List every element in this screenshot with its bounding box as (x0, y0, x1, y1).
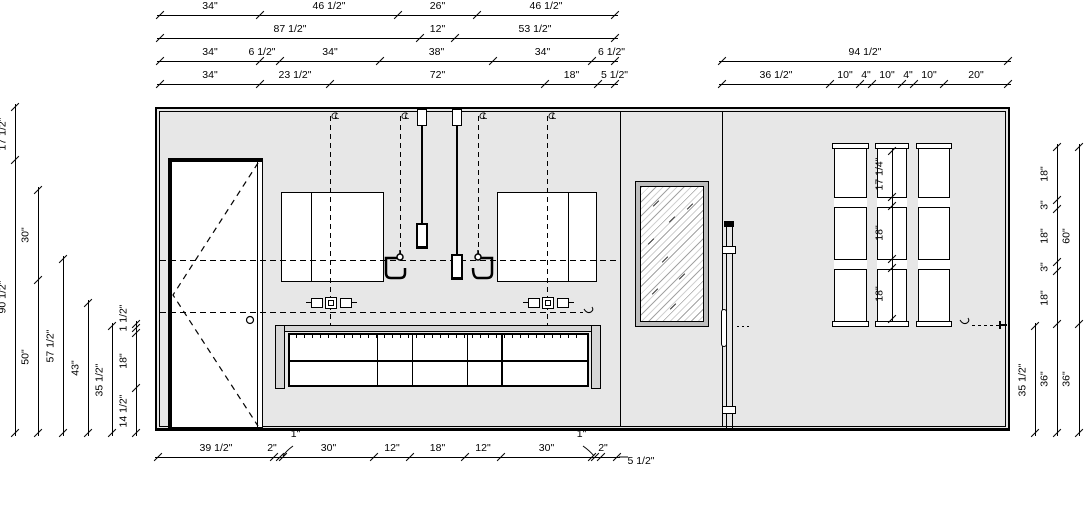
dim-label: 46 1/2" (313, 1, 346, 12)
dim-label: 30" (539, 443, 554, 454)
dim-label: 5 1/2" (601, 70, 628, 81)
dim-label: 10" (921, 70, 936, 81)
dim-label: 12" (430, 24, 445, 35)
dim-label: 60" (1062, 228, 1073, 243)
dim-label: 18" (119, 353, 130, 368)
dim-label: 39 1/2" (200, 443, 233, 454)
dim-label: 3" (1040, 200, 1051, 210)
dim-label: 34" (535, 47, 550, 58)
dim-label: 1" (291, 429, 301, 440)
dim-label: 2" (598, 443, 608, 454)
dim-label: 18" (430, 443, 445, 454)
dim-label: 38" (429, 47, 444, 58)
dimension-layer: 34"46 1/2"26"46 1/2"87 1/2"12"53 1/2"34"… (0, 0, 1087, 507)
dimension-line (155, 457, 620, 458)
dim-label: 36" (1040, 371, 1051, 386)
dim-label: 5 1/2" (627, 456, 654, 467)
dimension-line (719, 61, 1011, 62)
dim-label: 10" (879, 70, 894, 81)
dim-label: 14 1/2" (119, 394, 130, 427)
dim-label: 20" (968, 70, 983, 81)
dim-label: 1 1/2" (119, 304, 130, 331)
dimension-line (88, 300, 89, 436)
dimension-line (63, 256, 64, 436)
dim-label: 18" (1040, 290, 1051, 305)
dim-label: 36 1/2" (760, 70, 793, 81)
dim-label: 94 1/2" (849, 47, 882, 58)
dim-label: 18" (875, 286, 886, 301)
dim-label: 6 1/2" (248, 47, 275, 58)
dim-label: 23 1/2" (279, 70, 312, 81)
dimension-line (15, 104, 16, 436)
dimension-line (892, 148, 893, 322)
dimension-line (719, 84, 1011, 85)
dim-label: 34" (322, 47, 337, 58)
dim-label: 2" (267, 443, 277, 454)
dimension-line (157, 61, 618, 62)
dim-label: 34" (202, 1, 217, 12)
dim-label: 18" (564, 70, 579, 81)
elevation-drawing: CL CL CL CL (0, 0, 1087, 507)
dim-label: 12" (475, 443, 490, 454)
dim-label: 1" (577, 429, 587, 440)
dim-label: 17 1/4" (875, 158, 886, 191)
dim-label: 6 1/2" (598, 47, 625, 58)
dim-label: 10" (837, 70, 852, 81)
dim-label: 72" (430, 70, 445, 81)
dim-label: 17 1/2" (0, 117, 9, 150)
dimension-line (157, 84, 618, 85)
dim-label: 12" (384, 443, 399, 454)
dimension-line (136, 321, 137, 436)
dim-label: 30" (21, 227, 32, 242)
dimension-line (1079, 144, 1080, 436)
dim-label: 4" (903, 70, 913, 81)
dim-label: 34" (202, 70, 217, 81)
dimension-line (157, 15, 618, 16)
dimension-line (1035, 323, 1036, 436)
dim-label: 18" (1040, 166, 1051, 181)
dim-label: 53 1/2" (519, 24, 552, 35)
dim-label: 46 1/2" (530, 1, 563, 12)
dim-label: 90 1/2" (0, 280, 9, 313)
dim-label: 43" (71, 360, 82, 375)
dim-label: 26" (430, 1, 445, 12)
dim-label: 36" (1062, 371, 1073, 386)
dim-label: 18" (1040, 228, 1051, 243)
dim-label: 30" (321, 443, 336, 454)
dim-label: 34" (202, 47, 217, 58)
dim-label: 18" (875, 225, 886, 240)
dimension-line (1057, 144, 1058, 436)
dim-label: 4" (861, 70, 871, 81)
dim-label: 87 1/2" (274, 24, 307, 35)
dimension-line (38, 187, 39, 436)
dim-label: 35 1/2" (95, 363, 106, 396)
dim-label: 50" (21, 349, 32, 364)
dimension-line (157, 38, 618, 39)
dim-label: 35 1/2" (1018, 363, 1029, 396)
dim-label: 3" (1040, 262, 1051, 272)
dimension-line (112, 323, 113, 436)
dim-label: 57 1/2" (46, 330, 57, 363)
